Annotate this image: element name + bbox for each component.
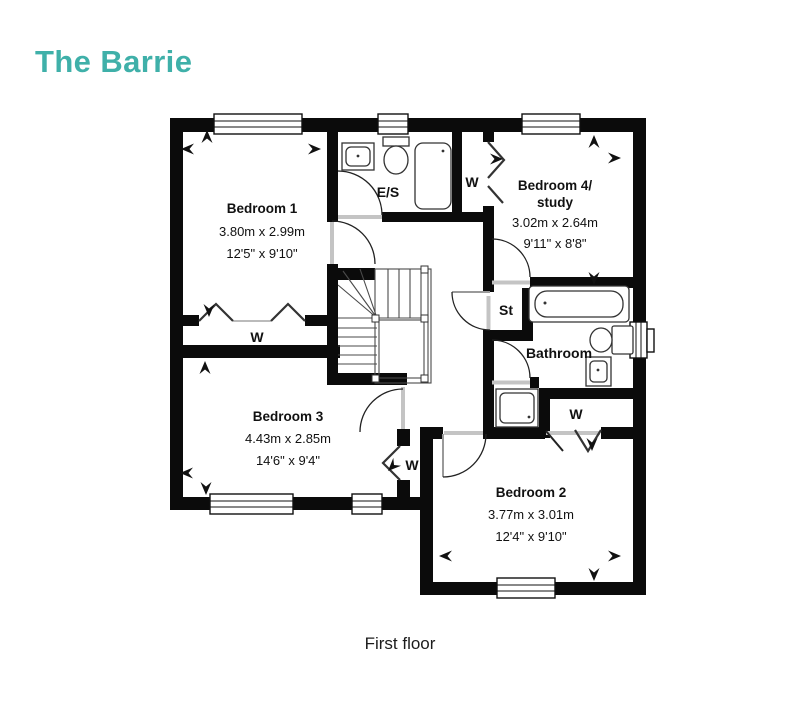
- bedroom1-name: Bedroom 1: [227, 201, 298, 216]
- wardrobe-label-mid: W: [250, 329, 264, 345]
- bedroom2-name: Bedroom 2: [496, 485, 567, 500]
- ensuite-label: E/S: [377, 184, 400, 200]
- bedroom1-metric: 3.80m x 2.99m: [219, 224, 305, 239]
- bedroom4-imperial: 9'11" x 8'8": [523, 236, 586, 251]
- floorplan-page: The Barrie Bedroom 1 3.80m x 2.99m 12'5"…: [0, 0, 800, 705]
- bedroom1-imperial: 12'5" x 9'10": [226, 246, 298, 261]
- bathroom-sink: [586, 357, 611, 386]
- ensuite-sink: [342, 143, 374, 170]
- bedroom4-name: Bedroom 4/: [518, 178, 593, 193]
- bedroom2-imperial: 12'4" x 9'10": [495, 529, 567, 544]
- bathroom-label: Bathroom: [526, 345, 592, 361]
- bedroom3-metric: 4.43m x 2.85m: [245, 431, 331, 446]
- wardrobe-label-bed2: W: [569, 406, 583, 422]
- store-label: St: [499, 302, 513, 318]
- bathroom-toilet: [590, 326, 633, 354]
- bedroom4-name2: study: [537, 195, 573, 210]
- floorplan-drawing: The Barrie Bedroom 1 3.80m x 2.99m 12'5"…: [0, 0, 800, 705]
- bedroom3-name: Bedroom 3: [253, 409, 324, 424]
- bedroom3-imperial: 14'6" x 9'4": [256, 453, 320, 468]
- page-title: The Barrie: [35, 44, 192, 79]
- floor-caption: First floor: [365, 634, 436, 653]
- wardrobe-label-bed3: W: [405, 457, 419, 473]
- bedroom4-metric: 3.02m x 2.64m: [512, 215, 598, 230]
- staircase: [338, 266, 431, 383]
- bathtub: [529, 286, 629, 322]
- ensuite-toilet: [383, 137, 409, 174]
- bedroom2-metric: 3.77m x 3.01m: [488, 507, 574, 522]
- bedroom2-shower: [496, 389, 538, 427]
- ensuite-shower-tray: [415, 143, 451, 209]
- wardrobe-label-top: W: [465, 174, 479, 190]
